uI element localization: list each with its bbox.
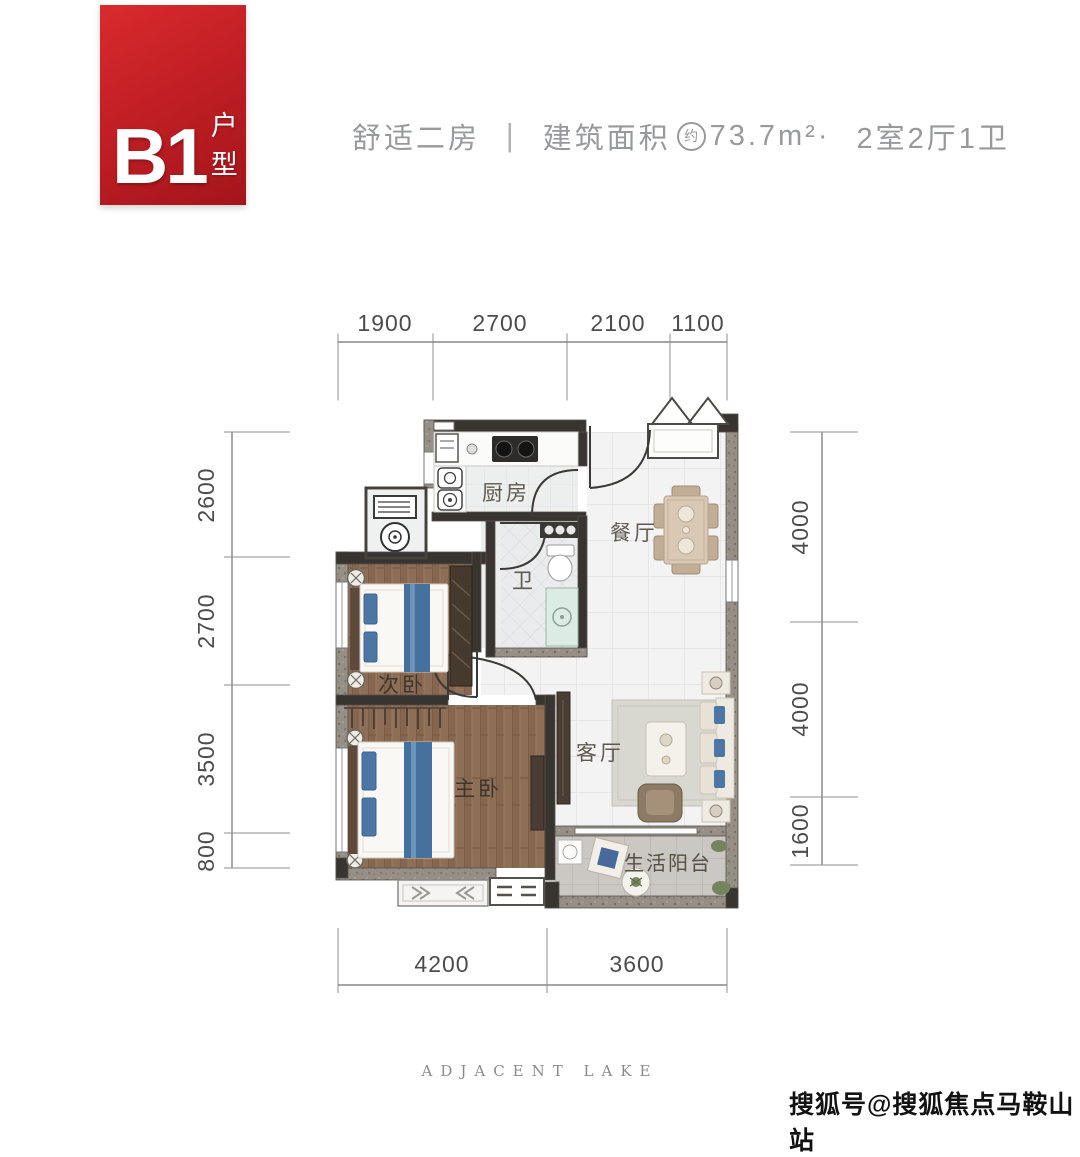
dim-left-0: 2600 [193,467,219,522]
room-label-dining: 餐厅 [610,522,658,545]
dim-top-1: 2700 [472,310,527,336]
dining-set [654,486,718,574]
room-label-master: 主卧 [454,778,502,801]
dim-left-2: 3500 [193,731,219,786]
coffee-table-icon [646,722,686,776]
dim-top-2: 2100 [590,310,645,336]
plant-icon [711,840,727,852]
dimension-chain-top: 1900 2700 2100 1100 [338,310,727,400]
dresser-icon [531,756,544,830]
dim-left-1: 2700 [193,593,219,648]
brand-footer: ADJACENT LAKE [0,1062,1080,1080]
plant-icon [712,881,730,895]
room-label-balcony: 生活阳台 [624,852,712,875]
room-label-kitchen: 厨房 [482,482,530,505]
watermark-text: 搜狐号@搜狐焦点马鞍山站 [789,1085,1080,1157]
dimension-chain-left: 2600 2700 3500 800 [193,432,290,872]
entry-niche [648,398,728,458]
wardrobe-icon [450,566,472,686]
bay-window [398,878,544,906]
dimension-chain-right: 4000 4000 1600 [787,432,858,865]
dim-left-3: 800 [193,830,219,871]
dim-bottom-1: 3600 [609,951,664,977]
sink-icon [438,468,462,488]
ac-platform [490,878,544,905]
dimension-chain-bottom: 4200 3600 [338,928,727,993]
floor-plan: 1900 2700 2100 1100 2600 2700 3500 800 4… [0,0,1080,1121]
dim-right-1: 4000 [787,681,813,736]
dim-right-0: 4000 [787,499,813,554]
room-label-bedroom2: 次卧 [378,674,426,697]
dim-top-0: 1900 [357,310,412,336]
dim-top-3: 1100 [671,310,724,336]
room-label-living: 客厅 [576,742,624,765]
toilet-icon [547,545,574,556]
dim-right-2: 1600 [787,803,813,858]
room-label-bath: 卫 [512,570,536,593]
bedroom2-furniture [348,566,473,689]
dim-bottom-0: 4200 [414,951,469,977]
